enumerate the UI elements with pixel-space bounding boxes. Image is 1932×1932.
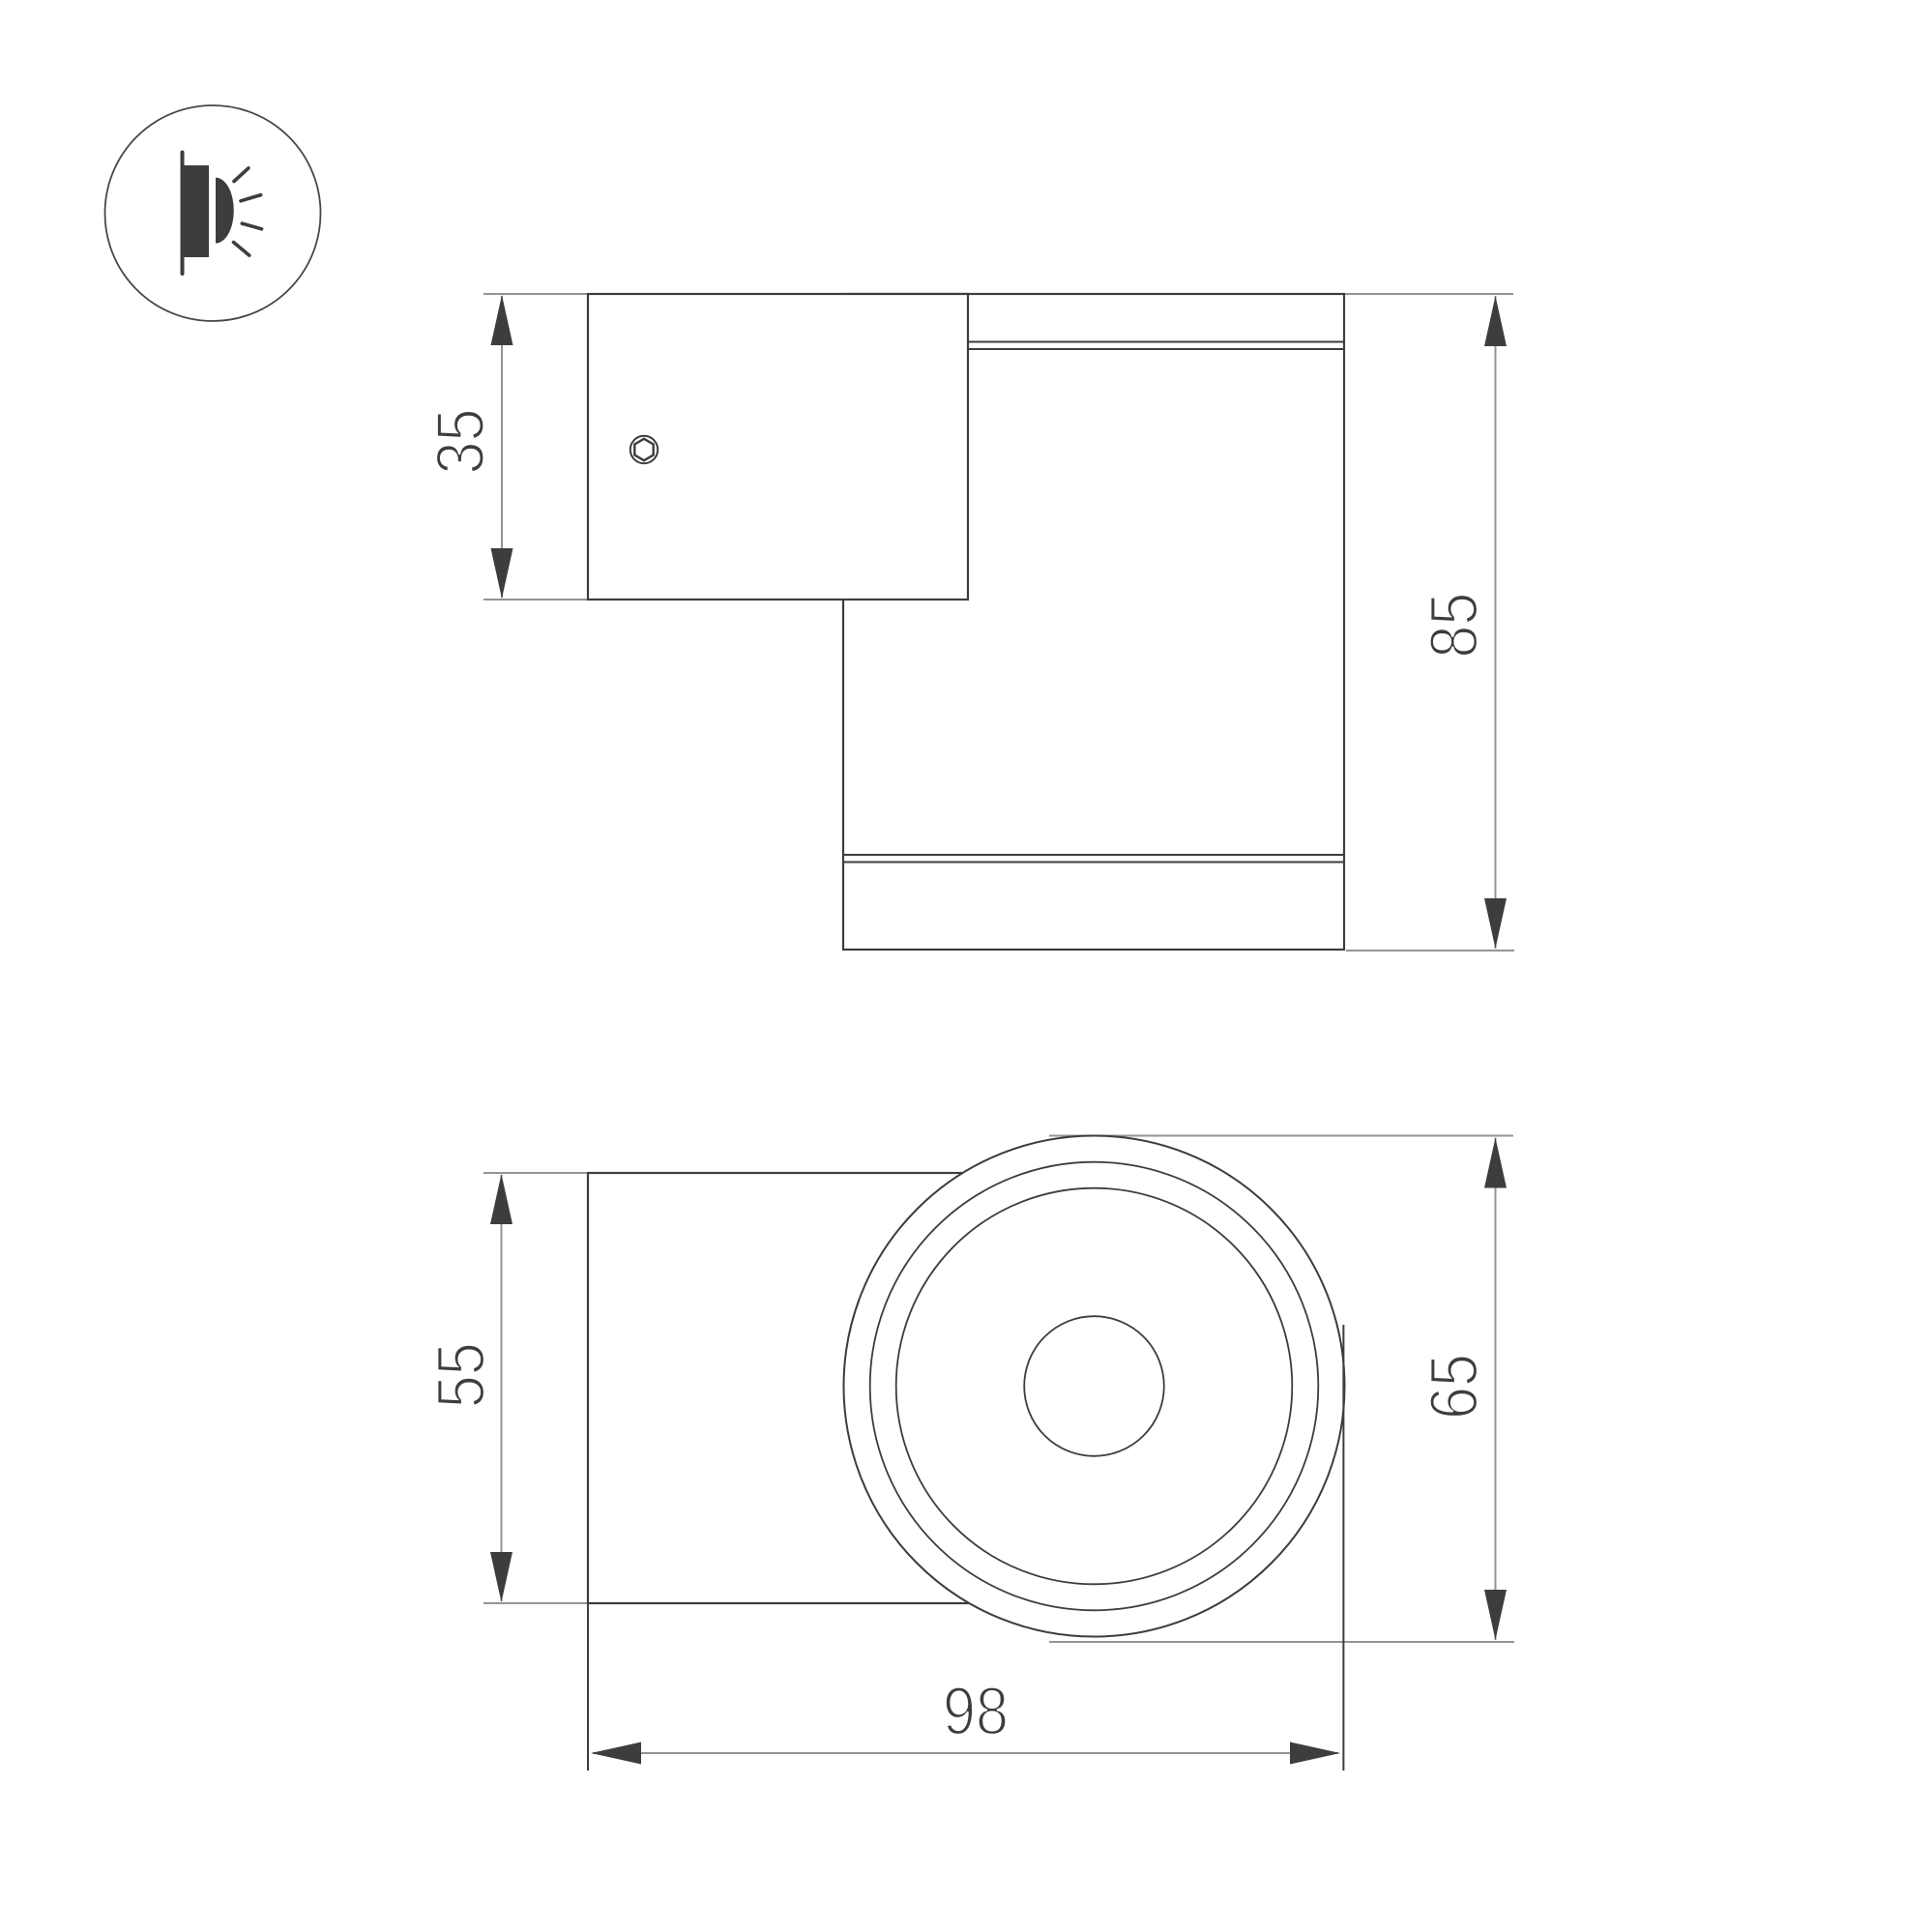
svg-text:55: 55 [424, 1342, 499, 1408]
svg-text:35: 35 [423, 409, 498, 475]
svg-text:98: 98 [943, 1674, 1009, 1749]
svg-text:65: 65 [1417, 1354, 1492, 1420]
svg-text:85: 85 [1416, 593, 1491, 659]
